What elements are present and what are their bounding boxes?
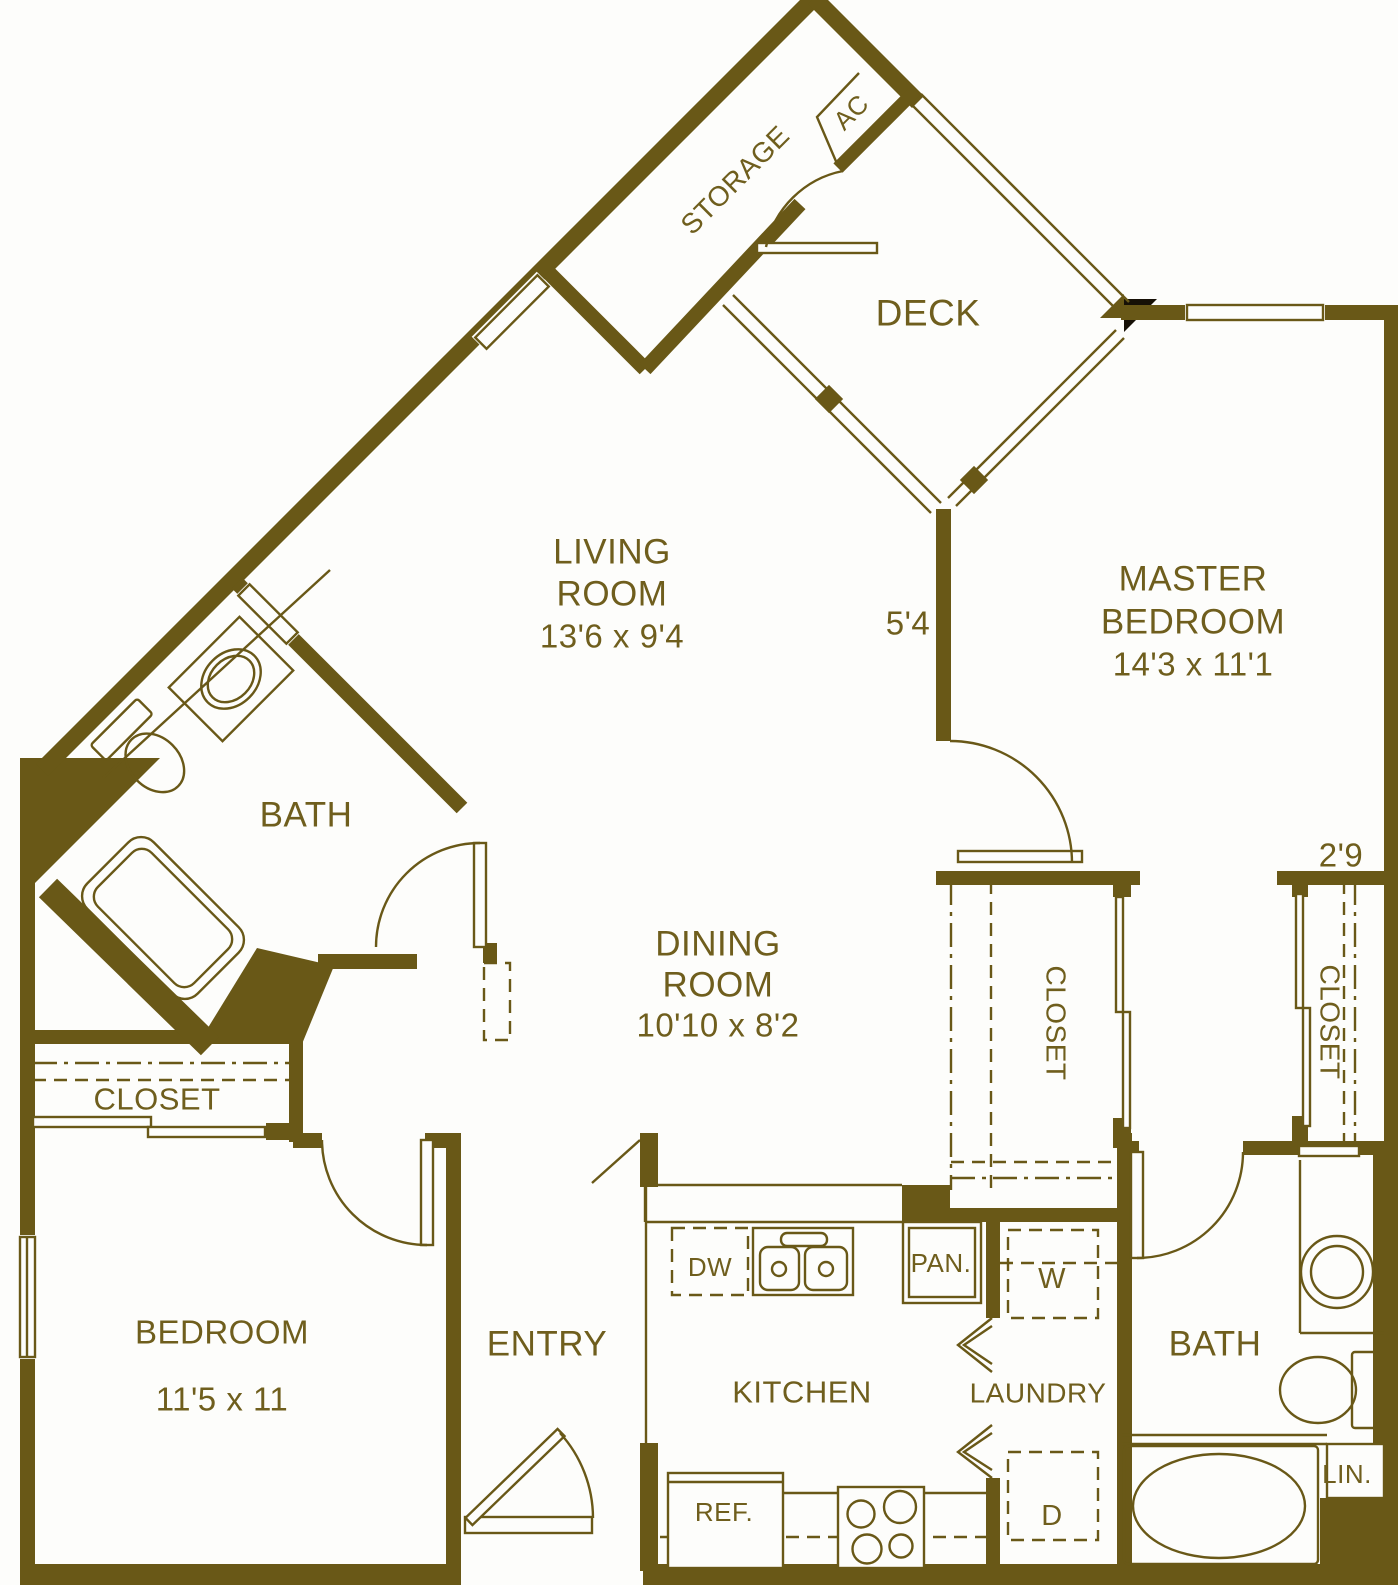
room-label-ac: AC [827, 88, 874, 135]
room-label-closet-bedroom: CLOSET [93, 1082, 220, 1117]
master-deck-window [948, 330, 1116, 498]
room-label-entry: ENTRY [487, 1325, 608, 1364]
bedroom-entry-wall [446, 1133, 461, 1585]
floor-plan-canvas: STORAGE AC DECK LIVING ROOM 13'6 x 9'4 M… [0, 0, 1398, 1585]
kitchen-corner-block [902, 1185, 950, 1222]
room-label-dining-2: ROOM [663, 966, 774, 1005]
bath-upper-pocket-door [484, 963, 510, 1040]
outer-wall-east [1384, 305, 1398, 1585]
laundry-north-wall [950, 1208, 1124, 1222]
laundry-west-wall-upper [986, 1222, 1000, 1318]
outer-wall-west [20, 783, 35, 1571]
kitchen-west-wall-bottom [640, 1443, 658, 1571]
bedroom-door-leaf [421, 1140, 433, 1245]
room-label-laundry: LAUNDRY [970, 1378, 1107, 1409]
room-label-closet-master: CLOSET [1315, 964, 1346, 1079]
deck-railing-outer [911, 104, 1119, 312]
room-label-bath-upper: BATH [260, 796, 353, 835]
kitchen-sink-fixture [753, 1228, 853, 1295]
closet-bedroom-sliding-door [33, 1117, 151, 1127]
outer-wall-south-left [20, 1564, 460, 1585]
deck-master-wall-5-4 [936, 509, 951, 741]
fixture-label-linen: LIN. [1322, 1459, 1372, 1489]
deck-window-post [815, 385, 843, 413]
closet-hall-sliding-door [1116, 897, 1123, 1012]
entry-door-swing [560, 1433, 593, 1518]
fixture-label-pantry: PAN. [911, 1248, 972, 1278]
room-dims-living: 13'6 x 9'4 [540, 618, 684, 655]
floor-plan-page: STORAGE AC DECK LIVING ROOM 13'6 x 9'4 M… [0, 0, 1398, 1585]
sink-fixture-upper-bath [189, 637, 272, 720]
kitchen-west-wall-top [640, 1133, 658, 1187]
closet-bedroom-east-wall [289, 1030, 303, 1142]
closet-hall-sliding-door [1123, 1012, 1130, 1128]
room-label-dining-1: DINING [655, 925, 781, 964]
bathtub-fixture-lower-bath [1124, 1446, 1318, 1564]
room-label-master-1: MASTER [1119, 560, 1268, 599]
entry-door-threshold [465, 1517, 592, 1533]
bath-upper-door-swing [376, 843, 480, 947]
room-label-bedroom: BEDROOM [135, 1314, 309, 1351]
laundry-west-wall-lower [986, 1478, 1000, 1571]
outer-wall-northwest [42, 0, 814, 770]
labels-layer: STORAGE AC DECK LIVING ROOM 13'6 x 9'4 M… [93, 88, 1371, 1532]
room-label-living-1: LIVING [553, 533, 671, 572]
closet-master-sliding-door [1296, 894, 1303, 1008]
annotation-2-9: 2'9 [1319, 837, 1364, 874]
room-label-kitchen: KITCHEN [732, 1375, 872, 1410]
closet-master-sliding-door [1303, 1008, 1310, 1126]
bath-upper-chamfer-fill [198, 948, 334, 1044]
bedroom-door-swing [322, 1140, 427, 1245]
annotation-5-4: 5'4 [886, 605, 931, 642]
bath-upper-tub-wall [48, 888, 210, 1046]
entry-door-leaf [465, 1429, 564, 1525]
room-label-bath-lower: BATH [1169, 1325, 1262, 1364]
fixture-label-dryer: D [1041, 1500, 1062, 1532]
deck-window-post [960, 466, 988, 494]
bath-upper-door-leaf [474, 843, 486, 947]
bath-upper-south-wall [318, 954, 417, 969]
room-dims-master: 14'3 x 11'1 [1113, 646, 1274, 683]
fixture-label-refrigerator: REF. [695, 1497, 753, 1527]
closet-bedroom-sliding-door [148, 1127, 265, 1137]
room-label-master-2: BEDROOM [1101, 603, 1285, 642]
closet-bedroom-north-wall [20, 1030, 303, 1044]
room-label-living-2: ROOM [557, 575, 668, 614]
room-label-deck: DECK [876, 293, 981, 334]
bath-lower-door-leaf [1131, 1152, 1143, 1258]
living-deck-window [723, 305, 931, 513]
master-door-leaf [958, 851, 1082, 862]
bath-lower-door-swing [1137, 1152, 1243, 1258]
bathtub-fixture-upper-bath [75, 830, 252, 1007]
room-dims-bedroom: 11'5 x 11 [156, 1381, 289, 1418]
fixture-label-washer: W [1038, 1263, 1066, 1295]
fixture-label-dishwasher: DW [688, 1252, 732, 1282]
master-door-swing [950, 741, 1072, 863]
room-dims-dining: 10'10 x 8'2 [636, 1007, 799, 1044]
outer-wall-northeast [814, 0, 918, 102]
storage-door-leaf [757, 243, 877, 253]
room-label-closet-hall: CLOSET [1041, 965, 1072, 1080]
master-south-wall-left [936, 871, 1140, 885]
bath-upper-corner-fill [20, 758, 160, 898]
storage-inner-wall [645, 204, 800, 369]
storage-end-wall [548, 272, 645, 369]
